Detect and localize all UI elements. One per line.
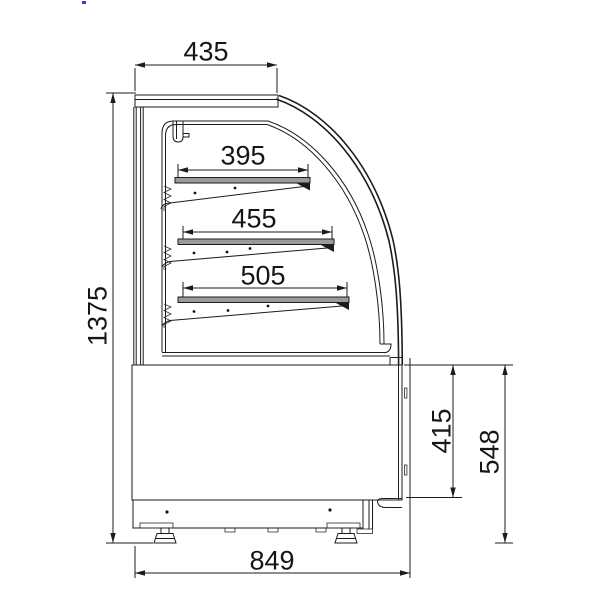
base-body-outline — [132, 365, 402, 500]
dimension-body-inner-height: 415 — [406, 365, 462, 498]
plinth-clip-2 — [268, 528, 278, 532]
foot-mount-plate-right — [327, 523, 360, 528]
adjustable-feet — [154, 528, 357, 543]
cabinet-canopy — [135, 95, 278, 107]
plinth-outline — [133, 500, 363, 528]
dimension-base-height: 548 — [404, 365, 513, 543]
cabinet-side-elevation-drawing: 435 1375 395 455 505 — [0, 0, 600, 600]
foot-right-stem — [342, 528, 350, 534]
foot-mount-plate-left — [140, 523, 173, 528]
plinth-clip-3 — [316, 528, 326, 532]
dimension-overall-height-label: 1375 — [82, 286, 112, 346]
dimension-top-depth: 435 — [135, 36, 277, 93]
plinth-clip-1 — [225, 528, 235, 532]
canopy-outline — [135, 95, 278, 107]
dimension-shelf-top: 395 — [178, 140, 308, 177]
shelf-middle-plate — [178, 239, 334, 245]
dimension-overall-depth: 849 — [135, 358, 410, 578]
base-body — [132, 365, 407, 508]
foot-left-stem — [161, 528, 169, 534]
shelf-lower — [162, 297, 349, 328]
dimension-top-depth-label: 435 — [183, 36, 228, 66]
dimension-shelf-bottom: 505 — [183, 260, 347, 296]
dimension-shelf-top-label: 395 — [220, 140, 265, 170]
dimension-overall-height: 1375 — [82, 93, 153, 543]
hinge-mark-top — [405, 388, 407, 398]
shelf-lower-plate — [178, 297, 349, 303]
technical-drawing-page: 435 1375 395 455 505 — [0, 0, 600, 600]
hinge-mark-bottom — [405, 465, 407, 475]
shelf-lower-bracket — [162, 306, 348, 327]
dimension-body-inner-height-label: 415 — [426, 408, 456, 453]
glass-end-cap — [390, 358, 403, 366]
shelf-upper-plate — [175, 178, 310, 184]
blue-artifact-dot — [82, 1, 86, 4]
rear-foot-bracket — [357, 529, 373, 534]
dimension-shelf-bottom-label: 505 — [240, 260, 285, 290]
dimension-overall-depth-label: 849 — [249, 545, 294, 575]
dimension-shelf-middle: 455 — [183, 203, 332, 238]
dimension-shelf-middle-label: 455 — [231, 203, 276, 233]
cabinet-back-wall — [134, 107, 143, 365]
dimension-base-height-label: 548 — [474, 429, 504, 474]
